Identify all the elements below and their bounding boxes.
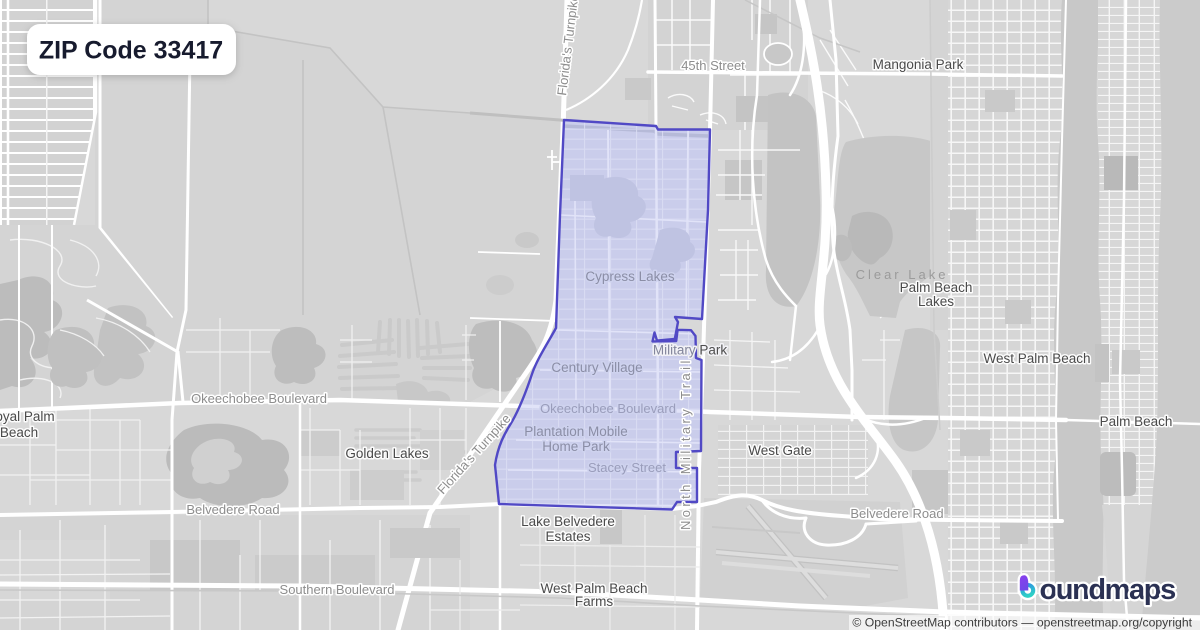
svg-text:Estates: Estates	[545, 529, 590, 544]
svg-text:Stacey Street: Stacey Street	[588, 460, 666, 475]
svg-text:Okeechobee Boulevard: Okeechobee Boulevard	[540, 401, 676, 416]
svg-text:Okeechobee Boulevard: Okeechobee Boulevard	[191, 391, 327, 406]
svg-text:Southern Boulevard: Southern Boulevard	[280, 582, 395, 597]
svg-text:Palm Beach: Palm Beach	[900, 280, 973, 295]
svg-text:Belvedere Road: Belvedere Road	[850, 506, 943, 521]
svg-text:North Military Trail: North Military Trail	[678, 357, 693, 530]
svg-text:Palm Beach: Palm Beach	[1100, 414, 1173, 429]
svg-text:Beach: Beach	[0, 425, 38, 440]
svg-text:© OpenStreetMap contributors —: © OpenStreetMap contributors — openstree…	[852, 616, 1192, 630]
svg-text:ZIP Code 33417: ZIP Code 33417	[39, 37, 223, 65]
svg-text:Lakes: Lakes	[918, 294, 954, 309]
svg-text:Home Park: Home Park	[542, 439, 610, 454]
svg-text:Farms: Farms	[575, 594, 613, 609]
svg-text:Mangonia Park: Mangonia Park	[873, 57, 964, 72]
svg-text:Lake Belvedere: Lake Belvedere	[521, 514, 615, 529]
svg-text:oundmaps: oundmaps	[1040, 574, 1177, 606]
svg-text:Military Park: Military Park	[653, 343, 728, 358]
svg-text:West Palm Beach: West Palm Beach	[983, 351, 1090, 366]
svg-text:Plantation Mobile: Plantation Mobile	[524, 424, 628, 439]
svg-text:Belvedere Road: Belvedere Road	[186, 502, 279, 517]
svg-text:West Gate: West Gate	[748, 443, 812, 458]
svg-text:45th Street: 45th Street	[681, 58, 745, 73]
svg-text:Golden Lakes: Golden Lakes	[345, 446, 429, 461]
svg-text:oyal Palm: oyal Palm	[0, 409, 55, 424]
svg-text:Cypress Lakes: Cypress Lakes	[585, 269, 675, 284]
svg-text:Century Village: Century Village	[551, 360, 642, 375]
